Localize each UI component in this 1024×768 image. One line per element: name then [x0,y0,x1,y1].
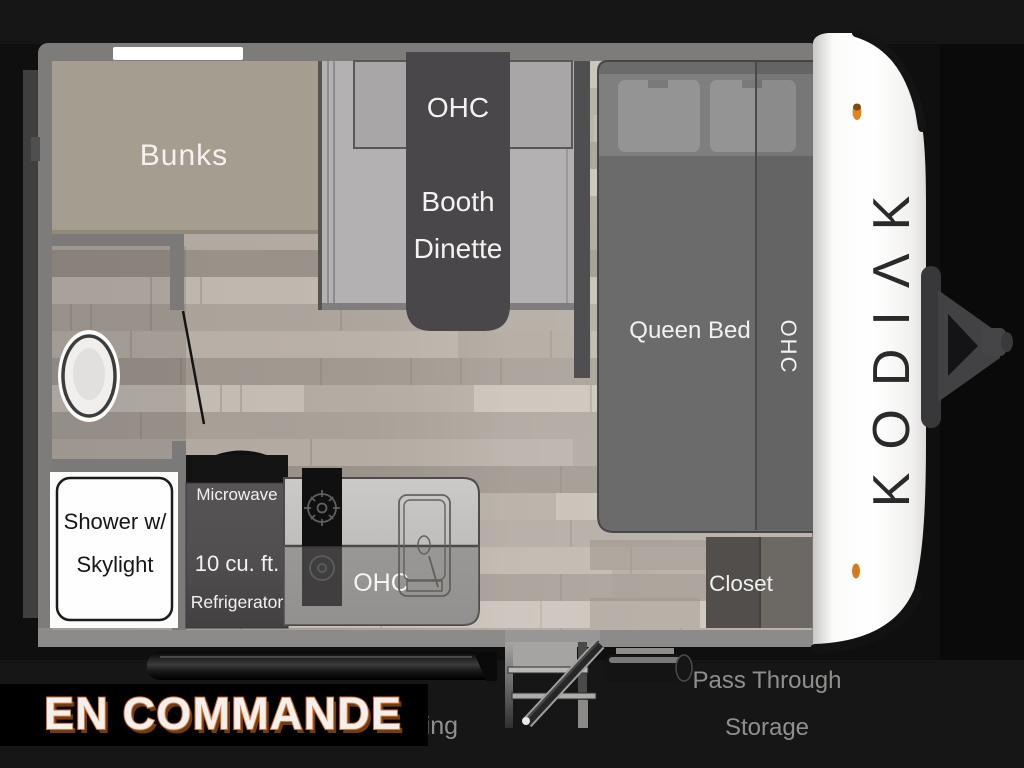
svg-text:10 cu. ft.: 10 cu. ft. [195,551,279,576]
svg-text:OHC: OHC [776,320,801,375]
svg-text:EN COMMANDE: EN COMMANDE [44,688,402,739]
svg-text:Skylight: Skylight [76,552,153,577]
svg-text:Booth: Booth [421,186,494,217]
svg-text:Storage: Storage [725,714,809,741]
svg-text:Microwave: Microwave [196,485,277,504]
svg-text:OHC: OHC [427,92,489,123]
svg-text:Dinette: Dinette [414,233,503,264]
svg-text:Bunks: Bunks [140,139,228,172]
svg-text:KODIΛK: KODIΛK [863,173,921,508]
svg-text:Pass Through: Pass Through [693,667,842,694]
svg-text:Refrigerator: Refrigerator [191,592,284,612]
svg-text:Shower w/: Shower w/ [64,509,168,534]
svg-text:Queen Bed: Queen Bed [629,317,750,344]
svg-text:Closet: Closet [709,571,774,596]
